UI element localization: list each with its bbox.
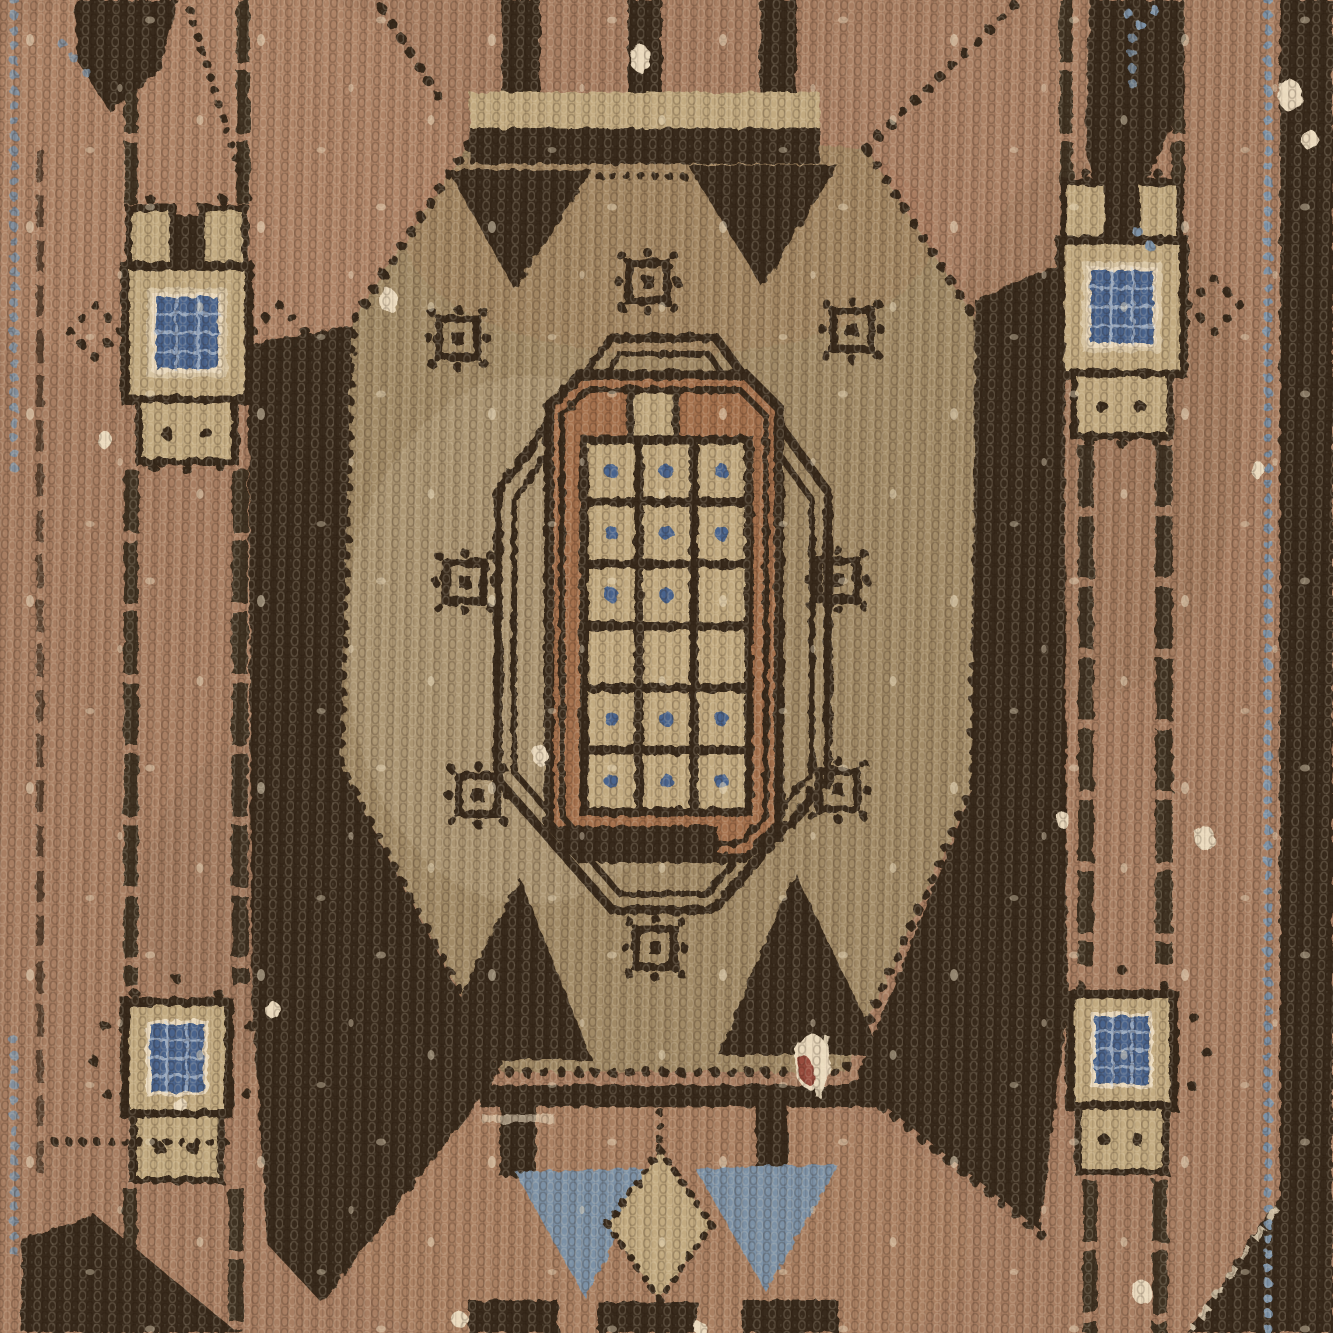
knit-texture-overlay xyxy=(0,0,1333,1333)
rug-artwork xyxy=(0,0,1333,1333)
rug-photo xyxy=(0,0,1333,1333)
